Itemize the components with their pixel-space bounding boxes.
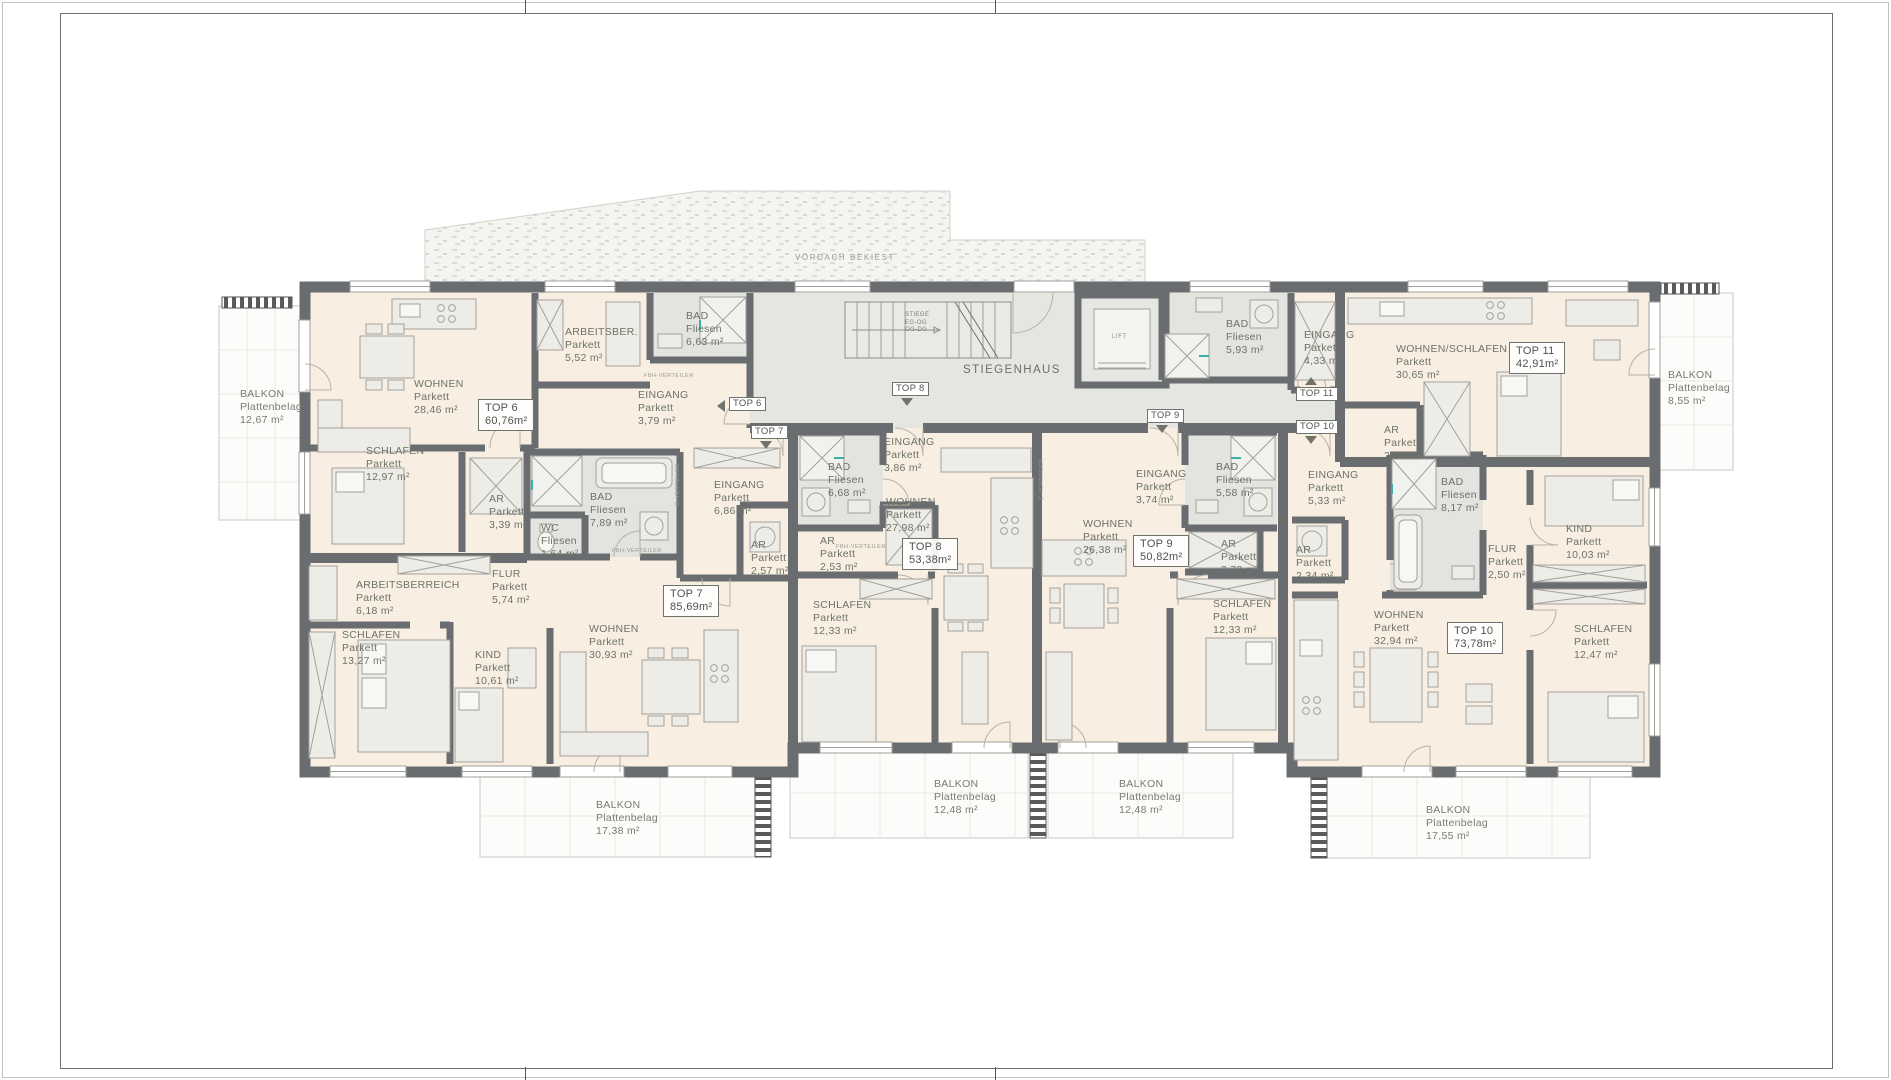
stairwell-label: STIEGENHAUS [963,364,1061,376]
wardrobe-icon [1533,565,1645,582]
room-label: SCHLAFENParkett12,97 m² [366,445,424,484]
room-label: WOHNEN/SCHLAFENParkett30,65 m² [1396,343,1507,382]
canopy-label: VORDACH BEKIEST [795,253,895,262]
entry-arrow-down-icon [760,441,772,449]
room-label: BADFliesen7,89 m² [590,491,628,530]
e-verteiler-label: E-VERTEILER [1039,459,1045,500]
room-label: KINDParkett10,61 m² [475,649,519,688]
room-label: ARParkett2,57 m² [751,539,789,578]
entry-marker-top11: TOP 11 [1296,387,1338,401]
shower-icon [532,456,582,506]
room-label: EINGANGParkett6,86 m² [714,479,765,518]
room-label: WOHNENParkett32,94 m² [1374,609,1424,648]
entry-arrow-down-icon [901,398,913,406]
balcony-label: BALKONPlattenbelag12,67 m² [240,388,302,427]
room-label: BADFliesen6,63 m² [686,310,724,349]
fbh-verteiler-label: FBH-VERTEILER [644,373,694,379]
room-label: WOHNENParkett30,93 m² [589,623,639,662]
unit-area-box-top7: TOP 785,69m² [663,585,719,617]
balcony-label: BALKONPlattenbelag17,55 m² [1426,804,1488,843]
wardrobe-icon [1533,589,1645,604]
room-label: ARParkett2,53 m² [820,535,858,574]
e-verteiler-label: E-VERTEILER [675,464,681,505]
entry-arrow-down-icon [1305,436,1317,444]
room-label: SCHLAFENParkett12,33 m² [813,599,871,638]
wardrobe-icon [398,556,490,574]
room-label: WOHNENParkett28,46 m² [414,378,464,417]
room-label: SCHLAFENParkett12,47 m² [1574,623,1632,662]
unit-area-box-top6: TOP 660,76m² [478,399,534,431]
room-label: BADFliesen6,68 m² [828,461,866,500]
wardrobe-icon [694,448,780,468]
room-label: WOHNENParkett26,38 m² [1083,518,1133,557]
entry-marker-top7: TOP 7 [751,425,788,439]
entry-marker-top8: TOP 8 [892,382,929,396]
room-label: KINDParkett10,03 m² [1566,523,1610,562]
lift-label: LIFT [1112,334,1127,340]
stair-run-label: STIEGE EG-OG OG-DG [905,312,929,335]
fbh-verteiler-label: FBH-VERTEILER [612,548,662,554]
room-label: BADFliesen8,17 m² [1441,476,1479,515]
room-label: EINGANGParkett5,33 m² [1308,469,1359,508]
room-label: EINGANGParkett3,79 m² [638,389,689,428]
room-label: WOHNENParkett27,98 m² [886,496,936,535]
entry-arrow-down-icon [1156,425,1168,433]
entry-arrow-left-icon [717,400,725,412]
balcony-label: BALKONPlattenbelag12,48 m² [1119,778,1181,817]
unit-area-box-top8: TOP 853,38m² [902,538,958,570]
floor-plan-sheet: FBH-VERTEILER FBH-VERTEILER FBH-VERTEILE… [0,0,1891,1080]
room-label: SCHLAFENParkett12,33 m² [1213,598,1271,637]
room-label: ARParkett2,79 m² [1221,538,1259,577]
room-label: ARBEITSBER.Parkett5,52 m² [565,326,638,365]
entry-marker-top10: TOP 10 [1296,420,1338,434]
wardrobe-icon [1424,382,1470,456]
unit-area-box-top9: TOP 950,82m² [1133,535,1189,567]
washing-machine-icon [640,512,668,540]
room-label: BADFliesen5,58 m² [1216,461,1254,500]
room-label: ARBEITSBERREICHParkett6,18 m² [356,579,460,618]
wardrobe-icon [860,579,932,599]
room-label: SCHLAFENParkett13,27 m² [342,629,400,668]
lift [1078,295,1166,385]
room-label: ARParkett3,39 m² [489,493,527,532]
wardrobe-icon [537,300,563,350]
entry-arrow-up-icon [1305,377,1317,385]
shower-icon [1392,459,1436,509]
unit-area-box-top11: TOP 1142,91m² [1509,342,1565,374]
room-label: WCFliesen1,64 m² [541,522,579,561]
balcony-label: BALKONPlattenbelag17,38 m² [596,799,658,838]
entry-marker-top6: TOP 6 [729,397,766,411]
entry-marker-top9: TOP 9 [1147,409,1184,423]
room-label: EINGANGParkett3,86 m² [884,436,935,475]
washing-machine-icon [802,488,830,516]
wardrobe-icon [309,632,335,758]
room-label: FLURParkett2,50 m² [1488,543,1526,582]
shower-icon [1165,334,1209,378]
unit-area-box-top10: TOP 1073,78m² [1447,622,1503,654]
room-label: BADFliesen5,93 m² [1226,318,1264,357]
room-label: EINGANGParkett3,74 m² [1136,468,1187,507]
room-label: EINGANGParkett4,33 m² [1304,329,1355,368]
room-label: ARParkett2,34 m² [1296,544,1334,583]
canopy-area [425,191,1145,287]
balcony-label: BALKONPlattenbelag8,55 m² [1668,369,1730,408]
wardrobe-icon [1177,579,1275,599]
room-label: ARParkett2,00 m² [1384,424,1422,463]
balcony-label: BALKONPlattenbelag12,48 m² [934,778,996,817]
room-label: FLURParkett5,74 m² [492,568,530,607]
